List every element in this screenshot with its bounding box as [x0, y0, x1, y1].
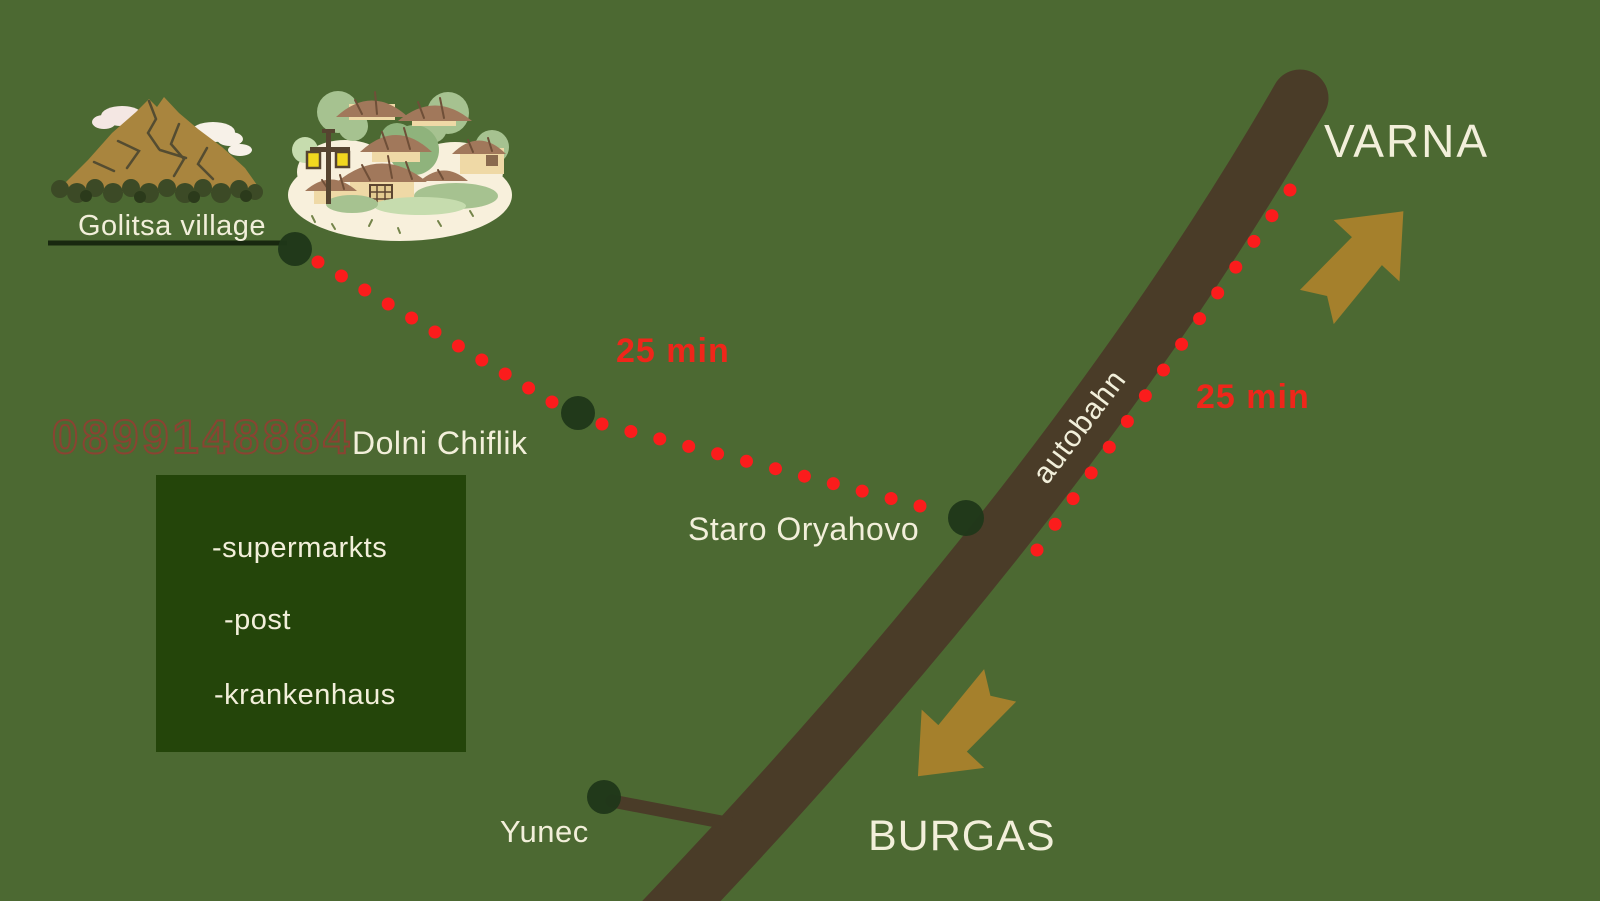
amenity-item-supermarkts: -supermarkts — [212, 534, 387, 563]
staro-oryahovo-label: Staro Oryahovo — [688, 513, 919, 545]
route-dot — [856, 485, 869, 498]
route-dot — [358, 284, 371, 297]
route-dot — [596, 418, 609, 431]
route-dot — [1067, 492, 1080, 505]
map-node-yunec — [587, 780, 621, 814]
route-dot — [827, 477, 840, 490]
route-dots-staro-to-varna — [1031, 184, 1297, 557]
route-dot — [624, 425, 637, 438]
route-dot — [740, 455, 753, 468]
route-dot — [312, 256, 325, 269]
map-node-staro-oryahovo — [948, 500, 984, 536]
route-dot — [1265, 209, 1278, 222]
route-dot — [1049, 518, 1062, 531]
route-dot — [1139, 389, 1152, 402]
route-dot — [798, 470, 811, 483]
route-dot — [1193, 312, 1206, 325]
route-dot — [1103, 441, 1116, 454]
route-dot — [522, 382, 535, 395]
route-dot — [885, 492, 898, 505]
varna-label: VARNA — [1324, 118, 1489, 164]
amenity-item-post: -post — [224, 606, 291, 635]
route-dot — [1085, 466, 1098, 479]
mountain-illustration — [51, 97, 263, 203]
route-dot — [1229, 261, 1242, 274]
map-node-dolni-chiflik — [561, 396, 595, 430]
phone-number: 0899148884 — [52, 413, 353, 460]
route-dot — [653, 432, 666, 445]
yunec-spur-road — [612, 801, 737, 825]
route-dot — [1247, 235, 1260, 248]
amenity-item-krankenhaus: -krankenhaus — [214, 681, 396, 710]
route-dot — [1121, 415, 1134, 428]
varna-arrow-icon — [1282, 181, 1436, 337]
route-dot — [1175, 338, 1188, 351]
route-dot — [1284, 184, 1297, 197]
route-dot — [769, 462, 782, 475]
route-dot — [475, 354, 488, 367]
autobahn-road — [625, 98, 1300, 901]
route-dot — [335, 270, 348, 283]
route-dot — [382, 298, 395, 311]
route-dot — [1031, 544, 1044, 557]
route-dots-golitsa-to-dolni — [312, 256, 559, 409]
travel-time-golitsa-staro: 25 min — [616, 334, 730, 368]
route-dot — [1157, 364, 1170, 377]
travel-time-staro-varna: 25 min — [1196, 380, 1310, 414]
route-dot — [682, 440, 695, 453]
amenities-panel: -supermarkts -post -krankenhaus — [156, 475, 466, 752]
dolni-chiflik-label: Dolni Chiflik — [352, 427, 527, 459]
route-dot — [499, 368, 512, 381]
golitsa-village-label: Golitsa village — [78, 212, 266, 241]
burgas-label: BURGAS — [868, 815, 1056, 858]
yunec-label: Yunec — [500, 816, 589, 847]
route-dot — [711, 447, 724, 460]
route-dot — [452, 340, 465, 353]
route-dot — [1211, 286, 1224, 299]
village-illustration — [288, 91, 512, 241]
route-dot — [429, 326, 442, 339]
map-canvas: Golitsa village 0899148884 Dolni Chiflik… — [0, 0, 1600, 901]
map-node-golitsa — [278, 232, 312, 266]
route-dots-dolni-to-staro — [596, 418, 927, 513]
route-dot — [546, 396, 559, 409]
route-dot — [405, 312, 418, 325]
